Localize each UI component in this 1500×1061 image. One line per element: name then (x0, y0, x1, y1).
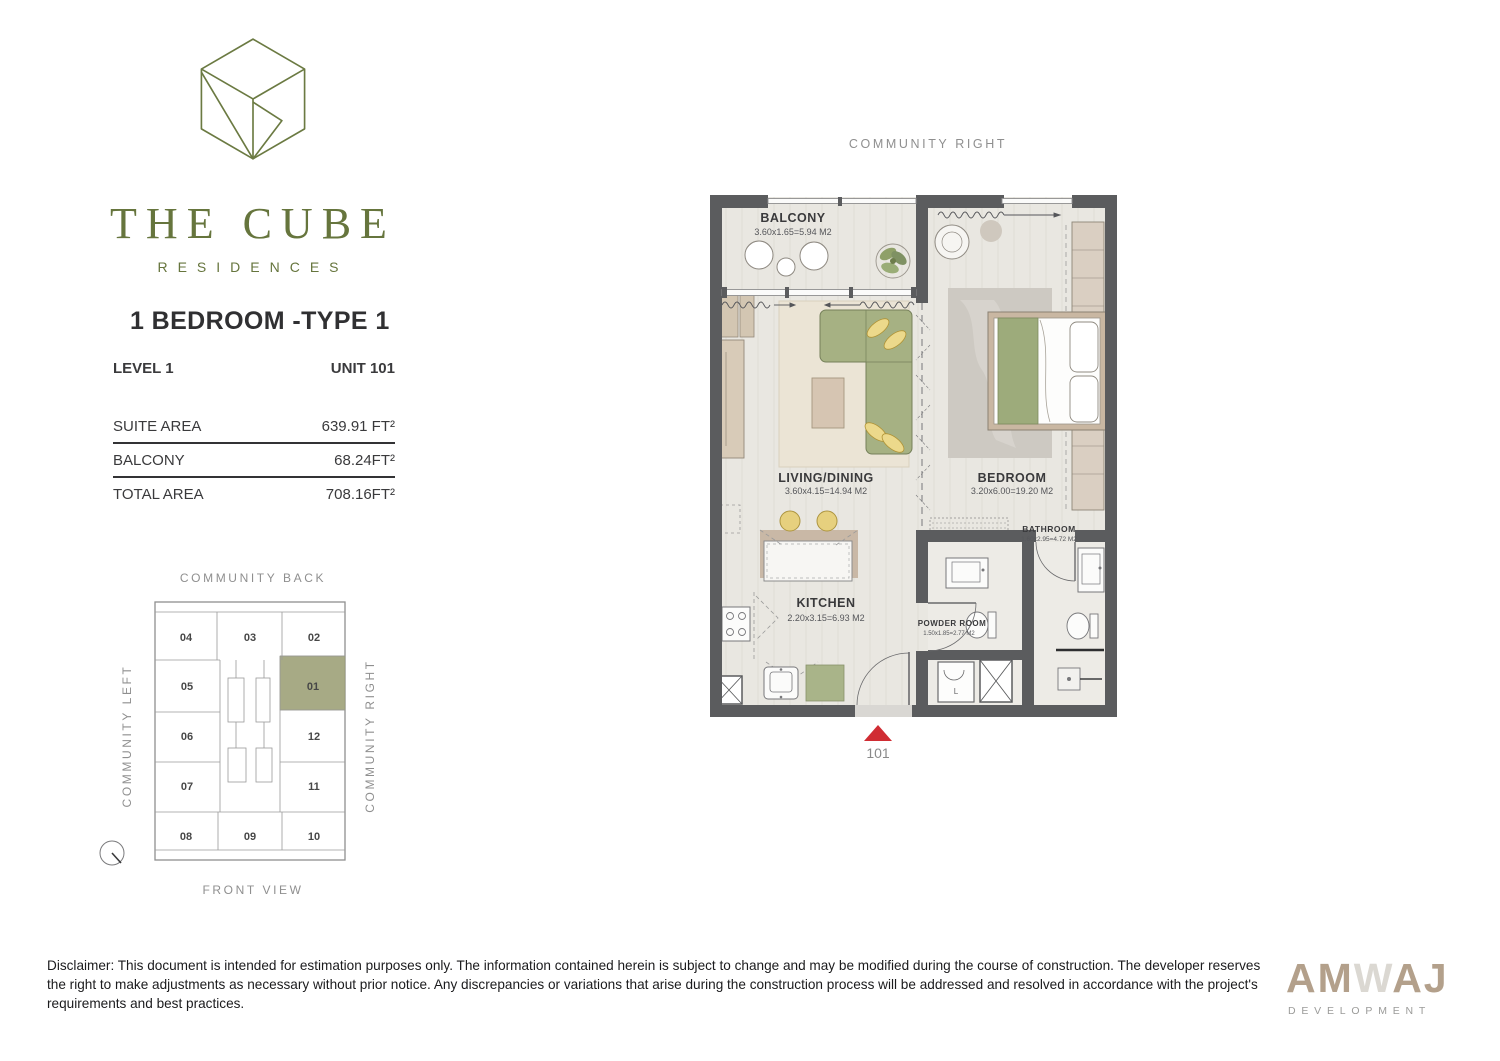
unit-number-label: UNIT 101 (331, 360, 395, 377)
room-label-bedroom: BEDROOM (978, 471, 1047, 485)
floorplan-orientation-label: COMMUNITY RIGHT (849, 137, 1007, 151)
bathroom-vanity (1078, 548, 1104, 592)
keyplan-unit[interactable]: 09 (244, 831, 256, 843)
keyplan-unit[interactable]: 10 (308, 831, 320, 843)
brand-name: THE CUBE (103, 198, 403, 249)
room-label-kitchen: KITCHEN (796, 596, 855, 610)
pillow (1070, 322, 1098, 372)
balcony-table (777, 258, 795, 276)
room-dims-kitchen: 2.20x3.15=6.93 M2 (787, 613, 864, 623)
bar-stool (817, 511, 837, 531)
page-title: 1 BEDROOM -TYPE 1 (130, 307, 390, 336)
entrance-unit-number: 101 (866, 745, 890, 761)
powder-vanity (946, 558, 988, 588)
room-dims-bedroom: 3.20x6.00=19.20 M2 (971, 486, 1053, 496)
room-dims-powder: 1.50x1.85=2.77 M2 (923, 631, 975, 637)
washer-label: L (954, 687, 959, 696)
bed-blanket (998, 318, 1038, 424)
bed (988, 312, 1106, 430)
developer-name-part: AJ (1392, 955, 1448, 1001)
room-dims-living: 3.60x4.15=14.94 M2 (785, 486, 867, 496)
room-label-powder: POWDER ROOM (918, 619, 987, 628)
unit-info-table: LEVEL 1 UNIT 101 SUITE AREA 639.91 FT² B… (113, 360, 395, 510)
area-label: BALCONY (113, 452, 185, 469)
keyplan-label-front: FRONT VIEW (155, 883, 351, 897)
developer-name-part: W (1354, 955, 1392, 1001)
pillow (1070, 376, 1098, 422)
compass-icon (100, 841, 124, 865)
area-label: TOTAL AREA (113, 486, 204, 503)
area-value: 639.91 FT² (322, 418, 395, 435)
developer-name-part: AM (1286, 955, 1354, 1001)
keyplan-unit[interactable]: 08 (180, 831, 192, 843)
keyplan-unit[interactable]: 05 (181, 681, 193, 693)
room-label-living: LIVING/DINING (778, 471, 873, 485)
keyplan-unit[interactable]: 03 (244, 632, 256, 644)
room-dims-bathroom: 1.60x2.95=4.72 M2 (1021, 536, 1077, 543)
room-label-balcony: BALCONY (760, 211, 825, 225)
disclaimer-text: Disclaimer: This document is intended fo… (47, 956, 1275, 1013)
kitchen-island (760, 530, 858, 581)
stove (722, 607, 750, 641)
keyplan-label-back: COMMUNITY BACK (155, 571, 351, 585)
brand-logo: THE CUBE RESIDENCES (103, 35, 403, 275)
washer: L (938, 662, 974, 702)
developer-logo: AMWAJ DEVELOPMENT (1286, 958, 1476, 1017)
balcony-chair (800, 242, 828, 270)
room-dims-balcony: 3.60x1.65=5.94 M2 (754, 227, 831, 237)
bar-stool (780, 511, 800, 531)
area-label: SUITE AREA (113, 418, 201, 435)
keyplan-diagram: 04 03 02 05 01 06 12 07 11 08 09 10 (95, 596, 351, 880)
developer-name: AMWAJ (1286, 958, 1476, 999)
level-unit-row: LEVEL 1 UNIT 101 (113, 360, 395, 377)
keyplan-unit[interactable]: 11 (308, 781, 320, 793)
brand-subtitle: RESIDENCES (103, 259, 403, 275)
area-value: 68.24FT² (334, 452, 395, 469)
coffee-table (812, 378, 844, 428)
level-label: LEVEL 1 (113, 360, 174, 377)
cube-logo-icon (178, 35, 328, 165)
keyplan-label-right: COMMUNITY RIGHT (363, 636, 379, 836)
table-row: BALCONY 68.24FT² (113, 444, 395, 478)
room-label-bathroom: BATHROOM (1022, 524, 1075, 534)
developer-subtitle: DEVELOPMENT (1286, 1005, 1476, 1017)
table-row: SUITE AREA 639.91 FT² (113, 410, 395, 444)
pouf (980, 220, 1002, 242)
entry-threshold (855, 705, 912, 717)
kitchen-counter-green (806, 665, 844, 701)
keyplan-unit[interactable]: 07 (181, 781, 193, 793)
kitchen-sink (764, 667, 798, 699)
keyplan-unit[interactable]: 06 (181, 731, 193, 743)
table-row: TOTAL AREA 708.16FT² (113, 478, 395, 510)
keyplan-unit[interactable]: 04 (180, 632, 193, 644)
keyplan-unit[interactable]: 12 (308, 731, 320, 743)
floorplan-brochure-page: { "brand": { "name": "THE CUBE", "subtit… (0, 0, 1500, 1061)
balcony-chair (745, 241, 773, 269)
keyplan-unit[interactable]: 02 (308, 632, 320, 644)
bathroom-toilet (1067, 613, 1098, 639)
keyplan-unit-selected[interactable]: 01 (307, 681, 319, 693)
floorplan-diagram: COMMUNITY RIGHT (700, 130, 1140, 775)
area-value: 708.16FT² (326, 486, 395, 503)
entrance-marker-icon (864, 725, 892, 741)
shaft-box (980, 660, 1012, 702)
